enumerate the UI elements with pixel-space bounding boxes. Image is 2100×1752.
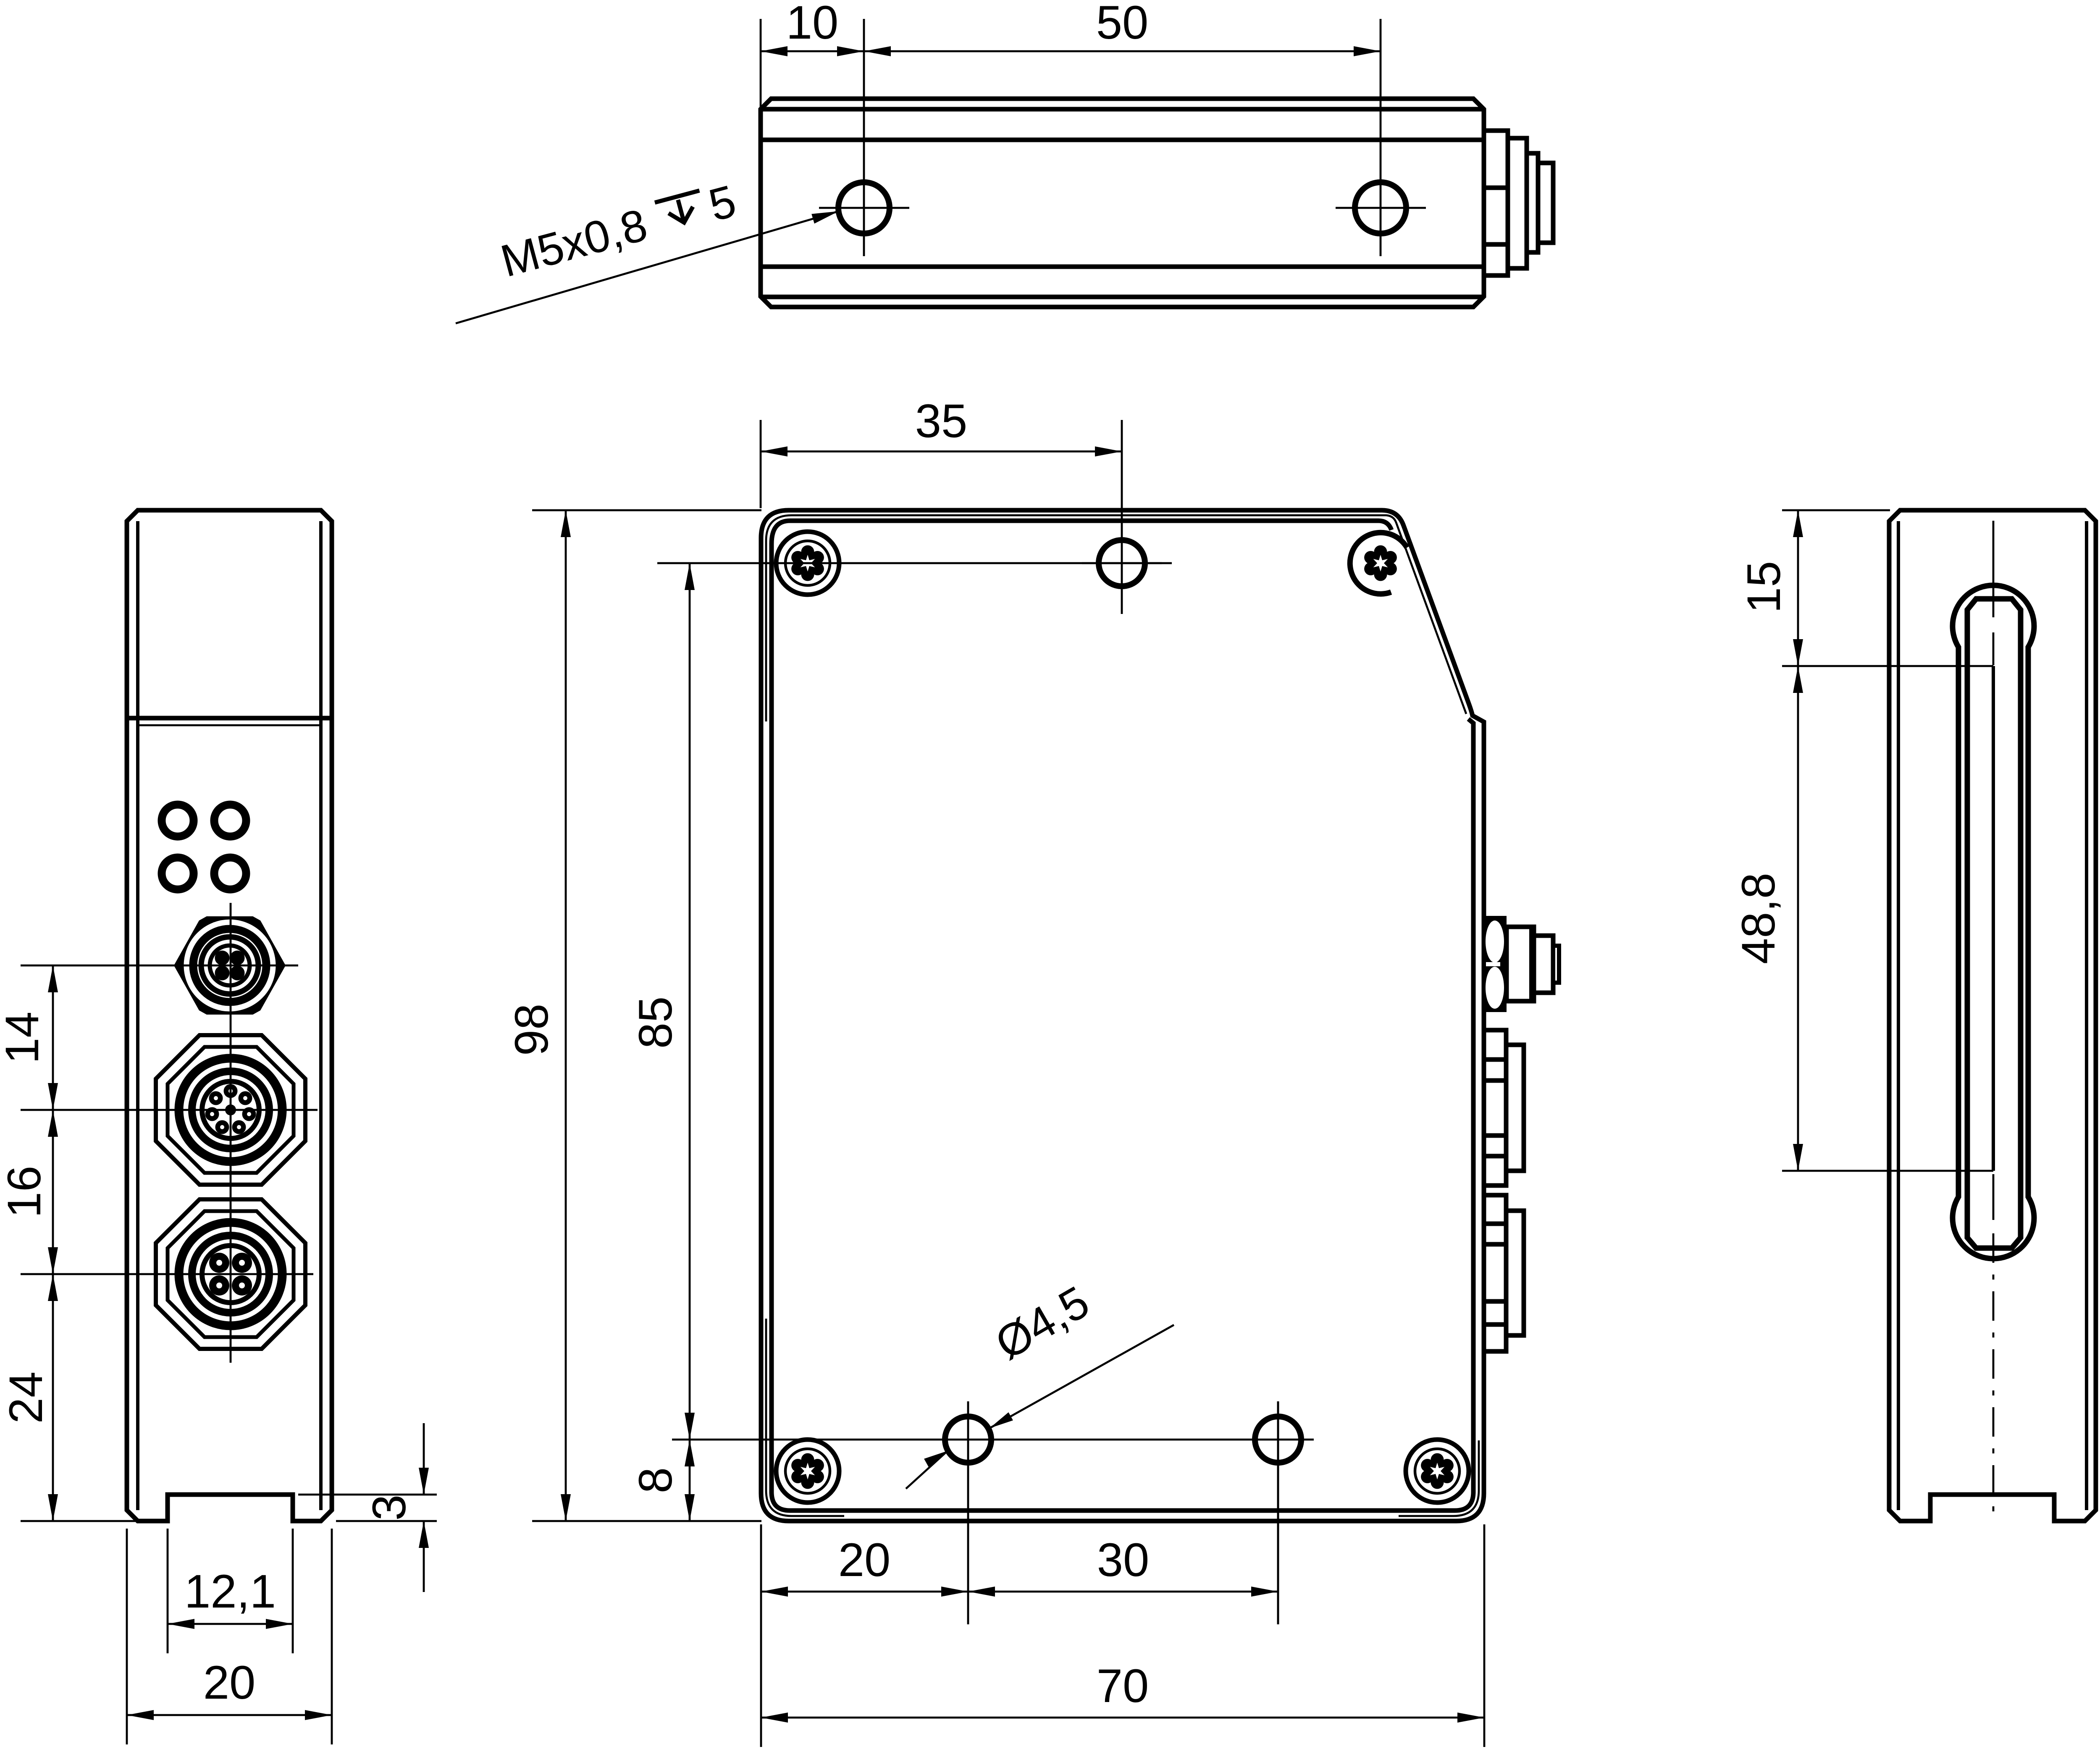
svg-text:30: 30 [1097,1534,1150,1586]
svg-text:24: 24 [0,1372,52,1424]
svg-text:48,8: 48,8 [1732,873,1785,964]
svg-text:35: 35 [915,395,968,447]
svg-text:8: 8 [629,1467,682,1493]
svg-text:10: 10 [786,0,839,49]
svg-text:15: 15 [1738,561,1790,614]
svg-text:16: 16 [0,1166,50,1218]
svg-text:12,1: 12,1 [184,1565,276,1618]
svg-text:20: 20 [838,1534,891,1586]
svg-text:14: 14 [0,1012,48,1064]
svg-text:70: 70 [1097,1660,1149,1712]
svg-text:3: 3 [363,1495,415,1521]
svg-text:98: 98 [505,1004,558,1056]
svg-text:20: 20 [203,1656,256,1709]
svg-text:50: 50 [1096,0,1149,49]
svg-text:85: 85 [629,997,682,1049]
